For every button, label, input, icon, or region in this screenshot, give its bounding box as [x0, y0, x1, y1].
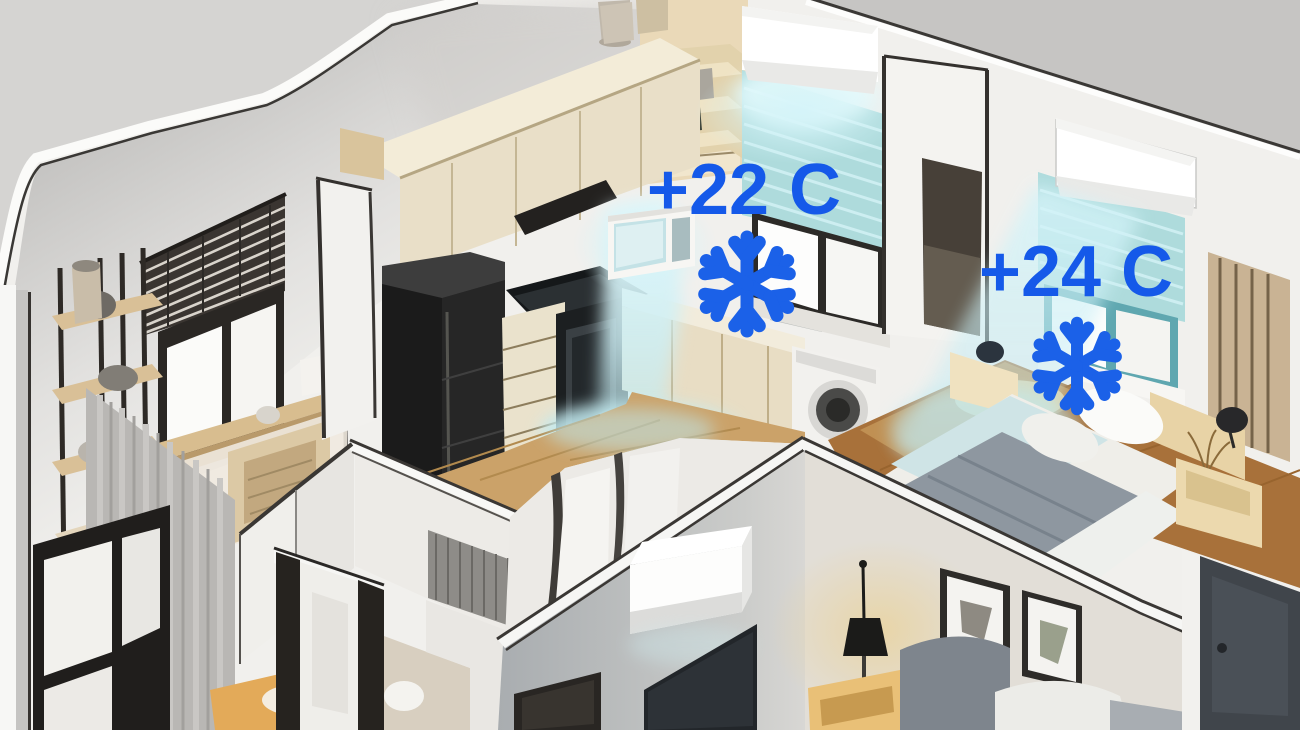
svg-text:+24 C: +24 C [979, 232, 1173, 312]
svg-text:+22 C: +22 C [647, 150, 841, 230]
